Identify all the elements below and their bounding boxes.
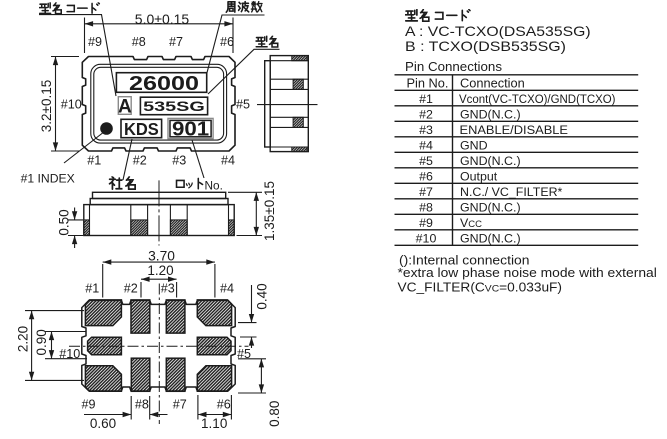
svg-text:No.: No. [205, 179, 223, 193]
svg-text:Connection: Connection [460, 76, 525, 91]
svg-text:3.2±0.15: 3.2±0.15 [39, 80, 54, 132]
svg-text:#3: #3 [172, 153, 186, 167]
svg-text:#2: #2 [124, 282, 138, 296]
svg-text:A: A [118, 97, 132, 118]
svg-text:#5: #5 [419, 154, 433, 168]
svg-text:#6: #6 [419, 169, 433, 183]
svg-text:#10: #10 [416, 231, 437, 245]
svg-text:0.40: 0.40 [255, 283, 270, 309]
svg-text:0.50: 0.50 [57, 209, 72, 235]
svg-text:535SG: 535SG [143, 98, 205, 114]
svg-text:KDS: KDS [124, 119, 159, 139]
svg-text:GND(N.C.): GND(N.C.) [460, 107, 521, 121]
svg-text:#4: #4 [221, 153, 235, 167]
svg-text:#2: #2 [133, 153, 147, 167]
svg-text:#1 INDEX: #1 INDEX [21, 171, 75, 185]
svg-text:#1: #1 [87, 153, 101, 167]
svg-text:#8: #8 [135, 398, 149, 412]
svg-text:1.20: 1.20 [147, 263, 173, 278]
svg-text:N.C./ VC_FILTER*: N.C./ VC_FILTER* [460, 185, 563, 199]
svg-text:GND(N.C.): GND(N.C.) [460, 231, 521, 245]
svg-text:*extra low phase noise mode wi: *extra low phase noise mode with externa… [398, 266, 657, 280]
svg-text:#6: #6 [217, 398, 231, 412]
svg-text:#2: #2 [419, 107, 433, 121]
svg-text:#3: #3 [161, 282, 175, 296]
svg-text:GND(N.C.): GND(N.C.) [460, 200, 521, 214]
svg-text:#7: #7 [169, 35, 183, 49]
svg-text:ENABLE/DISABLE: ENABLE/DISABLE [460, 123, 569, 137]
svg-text:#3: #3 [419, 123, 433, 137]
svg-text:5.0±0.15: 5.0±0.15 [135, 11, 190, 27]
svg-text:#6: #6 [220, 35, 234, 49]
svg-text:#4: #4 [220, 282, 234, 296]
svg-text:VC_FILTER(CVC=0.033uF): VC_FILTER(CVC=0.033uF) [398, 280, 563, 294]
svg-text:3.70: 3.70 [148, 248, 175, 263]
svg-text:Pin No.: Pin No. [407, 76, 449, 91]
svg-text:GND: GND [460, 138, 488, 152]
svg-text:1.10: 1.10 [201, 416, 227, 431]
svg-text:GND(N.C.): GND(N.C.) [460, 154, 521, 168]
svg-text:#10: #10 [61, 97, 82, 111]
svg-text:#8: #8 [419, 200, 433, 214]
svg-text:#5: #5 [236, 98, 250, 112]
svg-text:A : VC-TCXO(DSA535SG): A : VC-TCXO(DSA535SG) [405, 24, 591, 39]
svg-text:Pin Connections: Pin Connections [405, 59, 502, 74]
svg-text:#7: #7 [419, 185, 433, 199]
svg-text:26000: 26000 [129, 72, 199, 95]
svg-text:#1: #1 [85, 282, 99, 296]
svg-text:#1: #1 [419, 92, 433, 106]
svg-text:0.60: 0.60 [90, 416, 116, 431]
svg-text:2.20: 2.20 [16, 326, 31, 352]
svg-text:B : TCXO(DSB535SG): B : TCXO(DSB535SG) [405, 39, 566, 54]
svg-text:1.35±0.15: 1.35±0.15 [262, 181, 277, 241]
svg-text:0.80: 0.80 [267, 401, 282, 427]
svg-text:Vcont(VC-TCXO)/GND(TCXO): Vcont(VC-TCXO)/GND(TCXO) [459, 92, 616, 106]
svg-text:#9: #9 [88, 35, 102, 49]
svg-text:#4: #4 [419, 138, 433, 152]
svg-text:#9: #9 [81, 398, 95, 412]
svg-text:#9: #9 [419, 216, 433, 230]
svg-text:901: 901 [172, 119, 209, 141]
svg-text:Output: Output [460, 169, 498, 183]
svg-text:#7: #7 [173, 398, 187, 412]
svg-text:VCC: VCC [460, 216, 482, 230]
svg-text:0.90: 0.90 [34, 329, 49, 355]
svg-text:#8: #8 [132, 35, 146, 49]
